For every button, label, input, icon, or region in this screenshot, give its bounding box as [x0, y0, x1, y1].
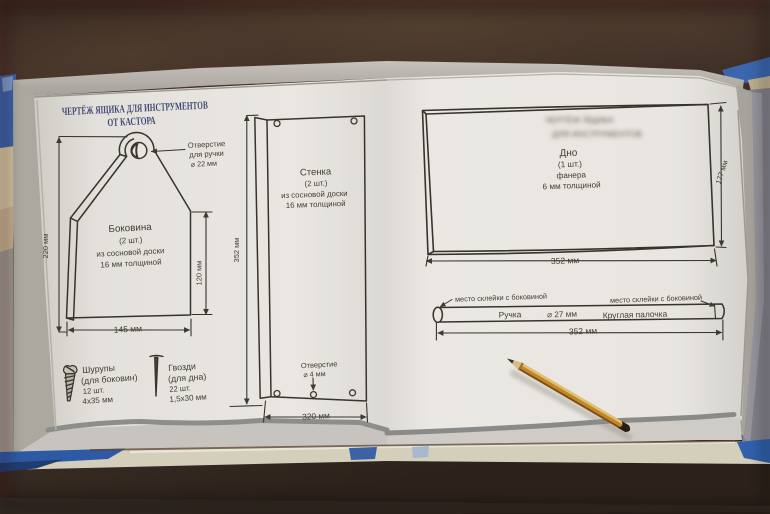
svg-text:Дно: Дно	[559, 148, 578, 160]
svg-text:320 мм: 320 мм	[302, 410, 330, 421]
svg-text:352 мм: 352 мм	[232, 238, 241, 263]
svg-text:фанера: фанера	[556, 170, 586, 180]
svg-text:(2 шт.): (2 шт.)	[304, 179, 328, 189]
svg-text:(2 шт.): (2 шт.)	[119, 235, 143, 245]
svg-text:22 шт.: 22 шт.	[169, 383, 191, 393]
svg-text:Боковина: Боковина	[108, 222, 152, 235]
svg-text:145 мм: 145 мм	[113, 323, 142, 334]
svg-text:352 мм: 352 мм	[551, 255, 580, 266]
svg-text:220 мм: 220 мм	[41, 234, 50, 259]
svg-text:⌀ 22 мм: ⌀ 22 мм	[191, 159, 218, 169]
svg-text:ЧЕРТЁЖ ЯЩИКА: ЧЕРТЁЖ ЯЩИКА	[545, 115, 614, 125]
svg-text:Круглая палочка: Круглая палочка	[603, 309, 668, 321]
svg-text:для ручки: для ручки	[189, 149, 224, 160]
svg-text:⌀ 27 мм: ⌀ 27 мм	[547, 310, 577, 320]
svg-text:12 шт.: 12 шт.	[82, 385, 104, 395]
svg-text:(1 шт.): (1 шт.)	[558, 160, 583, 170]
svg-text:⌀ 4 мм: ⌀ 4 мм	[303, 369, 326, 379]
svg-text:ДЛЯ ИНСТРУМЕНТОВ: ДЛЯ ИНСТРУМЕНТОВ	[552, 129, 642, 139]
svg-text:120 мм: 120 мм	[195, 261, 204, 286]
svg-text:Гвозди: Гвозди	[168, 361, 196, 373]
svg-text:Ручка: Ручка	[499, 309, 522, 320]
svg-text:Стенка: Стенка	[300, 166, 332, 178]
svg-text:ОТ КАСТОРА: ОТ КАСТОРА	[107, 115, 156, 129]
svg-text:352 мм: 352 мм	[569, 326, 598, 337]
